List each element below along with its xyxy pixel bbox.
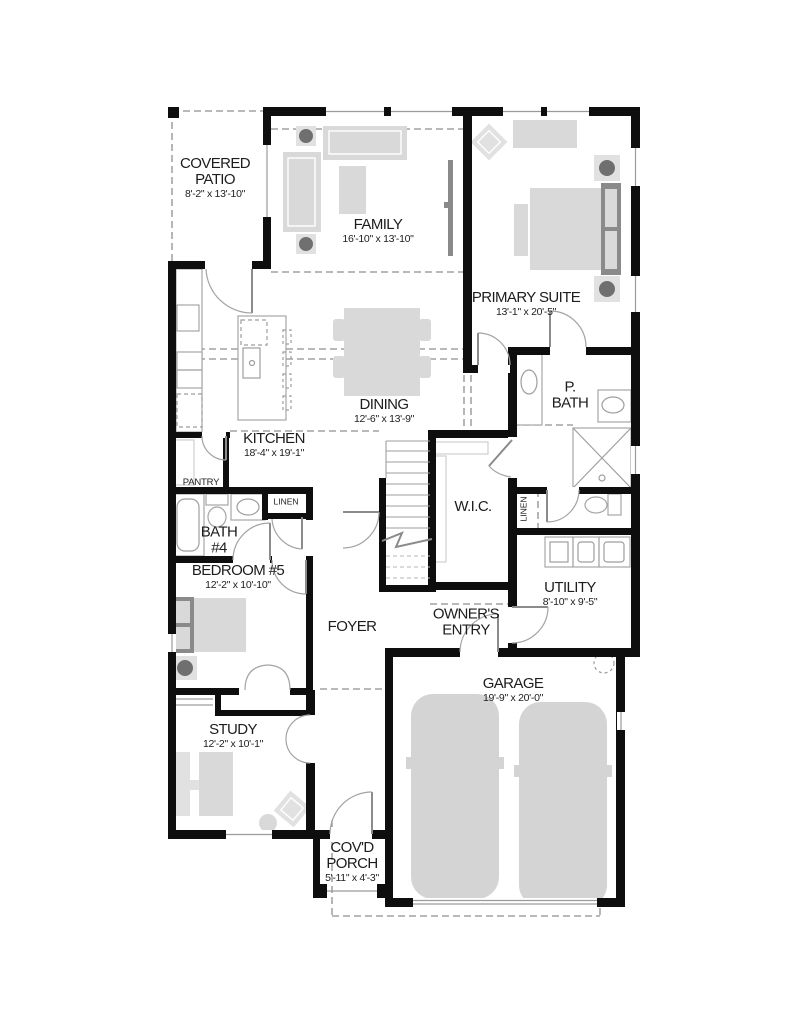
room-label-pantry: PANTRY (183, 478, 219, 488)
bed-bench (514, 204, 528, 256)
floor-plan-canvas: COVERED PATIO 8'-2" x 13'-10" FAMILY 16'… (0, 0, 792, 1024)
window (326, 107, 384, 116)
toilet (206, 494, 228, 527)
window (547, 107, 589, 116)
dresser (513, 120, 577, 148)
tv-unit (444, 160, 453, 256)
study-chair (274, 791, 311, 828)
side-table-lamp (296, 234, 316, 254)
room-label-dining: DINING 12'-6" x 13'-9" (354, 397, 414, 425)
window (391, 107, 452, 116)
door-front (330, 792, 372, 834)
porch-post (313, 884, 327, 898)
stairs (382, 441, 432, 578)
room-label-covd-porch: COV'D PORCH 5'-11" x 4'-3" (319, 840, 385, 884)
suite-cased-opening-jambs (464, 375, 471, 428)
room-label-wic: W.I.C. (454, 499, 491, 515)
room-label-garage: GARAGE 19'-9" x 20'-0" (483, 676, 544, 704)
primary-bed (530, 188, 602, 270)
headboard (601, 183, 621, 275)
door-toilet-room (547, 490, 579, 522)
toilet (585, 494, 621, 515)
wall-oven (177, 305, 199, 331)
room-label-bath-4: BATH #4 (195, 524, 243, 556)
room-label-family: FAMILY 16'-10" x 13'-10" (342, 217, 413, 245)
garage-door (413, 898, 597, 907)
room-label-bedroom-5: BEDROOM #5 12'-2" x 10'-10" (192, 563, 284, 591)
car-2 (514, 702, 612, 907)
door-primary-suite (478, 333, 510, 365)
room-label-kitchen: KITCHEN 18'-4" x 19'-1" (243, 431, 305, 459)
shower (573, 428, 631, 488)
loveseat (283, 152, 321, 232)
patio-corner-post (168, 107, 179, 118)
room-label-foyer: FOYER (328, 619, 377, 635)
door-linen-hall (272, 517, 302, 549)
window (503, 107, 541, 116)
room-label-linen-suite: LINEN (520, 496, 529, 521)
floor-plan-drawing (0, 0, 792, 1024)
room-label-owners-entry: OWNER'S ENTRY (428, 606, 504, 638)
room-label-study: STUDY 12'-2" x 10'-1" (203, 722, 263, 750)
window (631, 148, 640, 186)
window (263, 145, 271, 217)
door-pantry (202, 436, 226, 460)
window (631, 446, 640, 474)
room-label-utility: UTILITY 8'-10" x 9'-5" (543, 580, 598, 608)
window (168, 634, 176, 652)
bifold-closet-doors (245, 665, 290, 690)
window (226, 830, 272, 839)
window (631, 276, 640, 312)
nightstand-lamp (173, 656, 197, 680)
room-label-p-bath: P. BATH (546, 379, 594, 411)
room-label-covered-patio: COVERED PATIO 8'-2" x 13'-10" (169, 156, 261, 200)
side-table-lamp (296, 126, 316, 146)
nightstand-lamp (594, 276, 620, 302)
door-hall (343, 512, 379, 548)
refrigerator (177, 352, 202, 388)
desk-return (190, 780, 199, 790)
sofa (323, 126, 407, 160)
room-label-primary-suite: PRIMARY SUITE 13'-1" x 20'-5" (472, 290, 580, 318)
washer-dryer (545, 537, 630, 567)
car-1 (406, 694, 504, 899)
desk (199, 752, 233, 816)
bed5 (172, 597, 246, 653)
coffee-table (339, 166, 366, 214)
kitchen-counter (176, 269, 202, 432)
window (617, 712, 625, 730)
nightstand-lamp (594, 155, 620, 181)
stair-break-line (382, 533, 432, 547)
kitchen-island (238, 316, 286, 420)
round-table (259, 814, 277, 832)
pbath-vanity (516, 353, 542, 425)
door-patio (206, 269, 252, 313)
pbath-vanity-2 (598, 390, 631, 422)
room-label-linen-hall: LINEN (273, 498, 298, 507)
accent-chair (471, 124, 508, 161)
study-ledge (172, 699, 213, 705)
porch-post (377, 884, 391, 898)
door-utility (512, 607, 548, 643)
bath4-vanity (231, 494, 265, 520)
dining-table (344, 308, 420, 396)
